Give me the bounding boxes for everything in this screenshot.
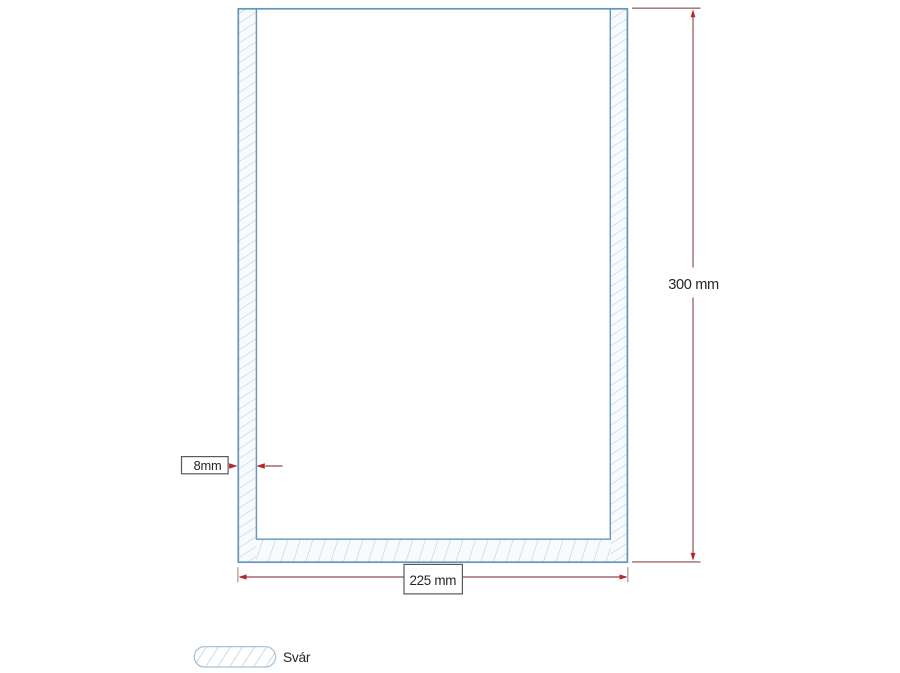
svg-text:300 mm: 300 mm (668, 277, 719, 293)
svg-text:8mm: 8mm (194, 458, 222, 473)
svg-text:225 mm: 225 mm (410, 573, 457, 588)
svg-text:Svár: Svár (283, 650, 311, 665)
